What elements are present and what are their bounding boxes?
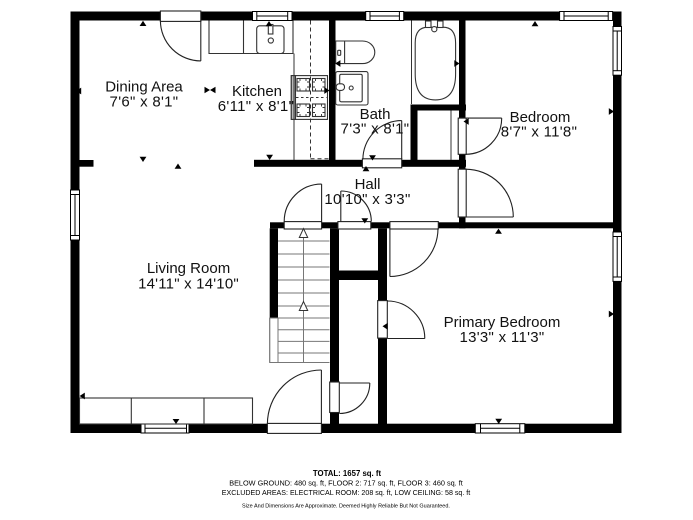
svg-text:10'10" x 3'3": 10'10" x 3'3"	[324, 191, 410, 208]
svg-text:14'11" x 14'10": 14'11" x 14'10"	[138, 276, 239, 293]
svg-text:7'6" x 8'1": 7'6" x 8'1"	[110, 94, 179, 111]
svg-text:13'3" x 11'3": 13'3" x 11'3"	[459, 329, 544, 346]
svg-text:EXCLUDED AREAS: ELECTRICAL ROO: EXCLUDED AREAS: ELECTRICAL ROOM: 208 sq.…	[222, 489, 471, 497]
svg-text:BELOW GROUND: 480 sq. ft, FLOO: BELOW GROUND: 480 sq. ft, FLOOR 2: 717 s…	[229, 479, 463, 488]
svg-text:Size And Dimensions Are Approx: Size And Dimensions Are Approximate. Dee…	[242, 504, 450, 510]
svg-text:Living Room: Living Room	[147, 260, 230, 277]
svg-text:7'3" x 8'1": 7'3" x 8'1"	[341, 121, 410, 138]
svg-text:6'11" x 8'1": 6'11" x 8'1"	[218, 98, 294, 115]
svg-text:8'7" x 11'8": 8'7" x 11'8"	[501, 124, 577, 141]
svg-text:TOTAL: 1657 sq. ft: TOTAL: 1657 sq. ft	[313, 469, 382, 478]
